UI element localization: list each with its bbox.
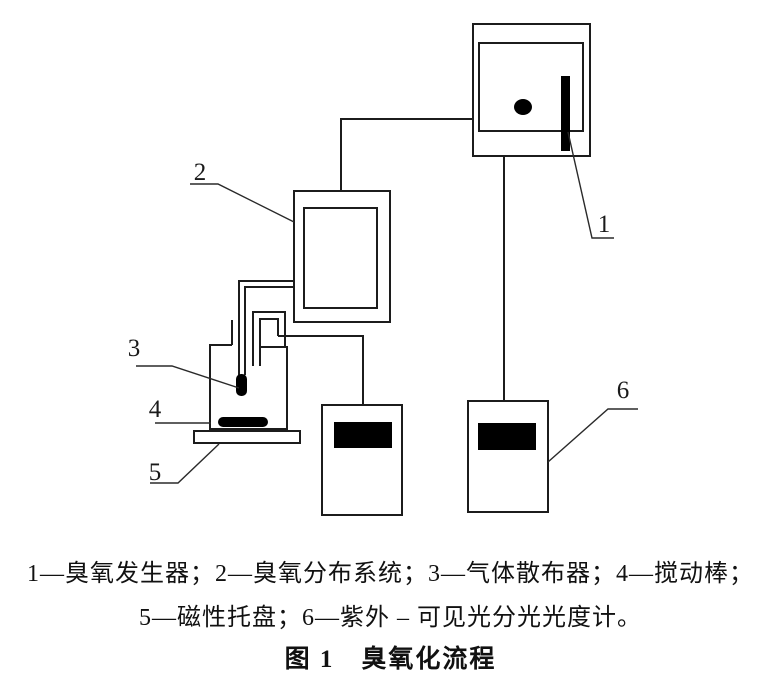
spectrophotometer-display (478, 423, 536, 450)
legend-line-2: 5—磁性托盘；6—紫外 – 可见光分光光度计。 (0, 597, 781, 632)
part-label-5: 5 (149, 459, 162, 486)
leader-line-3 (136, 366, 239, 388)
left-detector-display (334, 422, 392, 448)
leader-line-2 (190, 184, 294, 222)
spectrophotometer-box (468, 401, 548, 512)
pipe-generator-to-distributor (341, 119, 473, 191)
legend-line-1: 1—臭氧发生器；2—臭氧分布系统；3—气体散布器；4—搅动棒； (0, 553, 781, 588)
ozonation-process-diagram: 1 2 3 4 5 6 (0, 0, 781, 545)
generator-indicator-dot (514, 99, 532, 115)
part-label-1: 1 (598, 211, 611, 238)
part-label-6: 6 (617, 377, 630, 404)
left-detector-box (322, 405, 402, 515)
beaker-outline (210, 345, 287, 429)
part-label-3: 3 (128, 335, 141, 362)
vent-tube-inner-line (260, 319, 278, 366)
part-label-2: 2 (194, 159, 207, 186)
leader-line-6 (548, 409, 638, 462)
magnetic-tray (194, 431, 300, 443)
gas-diffuser-tip (236, 374, 247, 396)
generator-lamp-bar (561, 76, 570, 151)
figure-caption: 图 1 臭氧化流程 (0, 639, 781, 675)
stir-bar (218, 417, 268, 427)
vent-line-to-detector (278, 336, 363, 405)
figure-page: 1 2 3 4 5 6 1—臭氧发生器；2—臭氧分布系统；3—气体散布器；4—搅… (0, 0, 781, 683)
distribution-system-outer-box (294, 191, 390, 322)
vent-tube-outer-line (253, 312, 285, 366)
distribution-system-inner-panel (304, 208, 377, 308)
part-label-4: 4 (149, 396, 162, 423)
